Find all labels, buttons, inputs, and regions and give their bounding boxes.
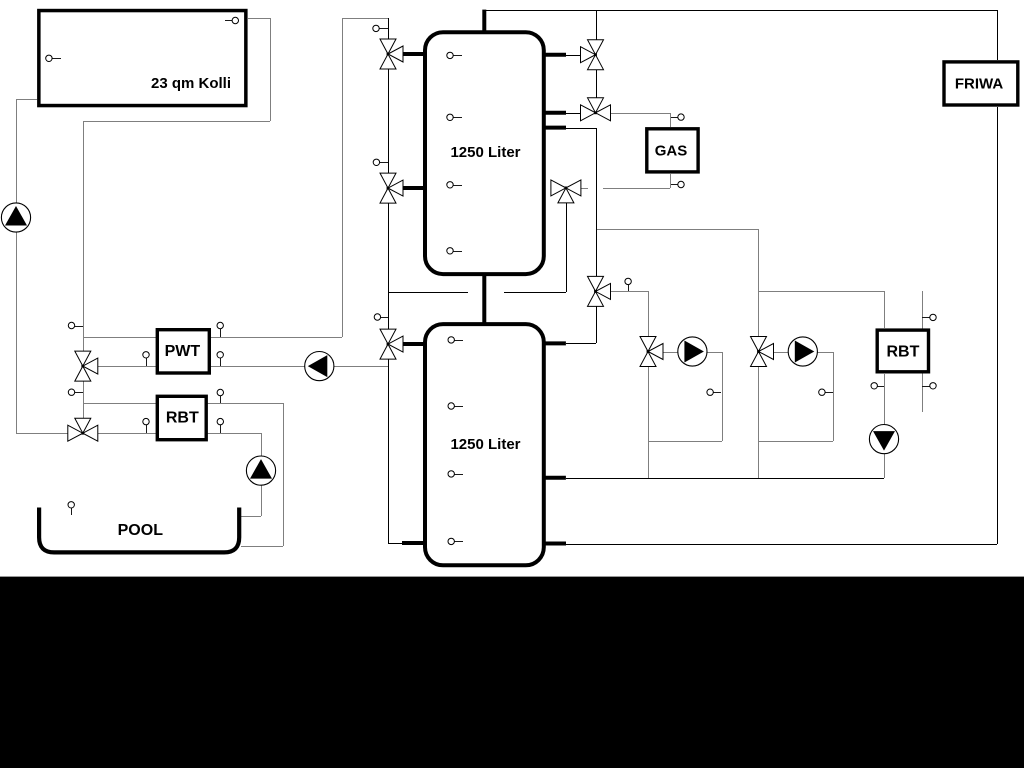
svg-text:PWT: PWT [165,343,201,360]
svg-text:POOL: POOL [118,522,164,539]
svg-text:1250 Liter: 1250 Liter [450,436,520,453]
svg-text:FRIWA: FRIWA [955,76,1003,93]
svg-text:RBT: RBT [886,343,919,360]
svg-text:23 qm Kolli: 23 qm Kolli [151,75,231,92]
svg-text:RBT: RBT [166,410,199,427]
svg-text:GAS: GAS [655,143,688,160]
svg-text:1250 Liter: 1250 Liter [450,144,520,161]
